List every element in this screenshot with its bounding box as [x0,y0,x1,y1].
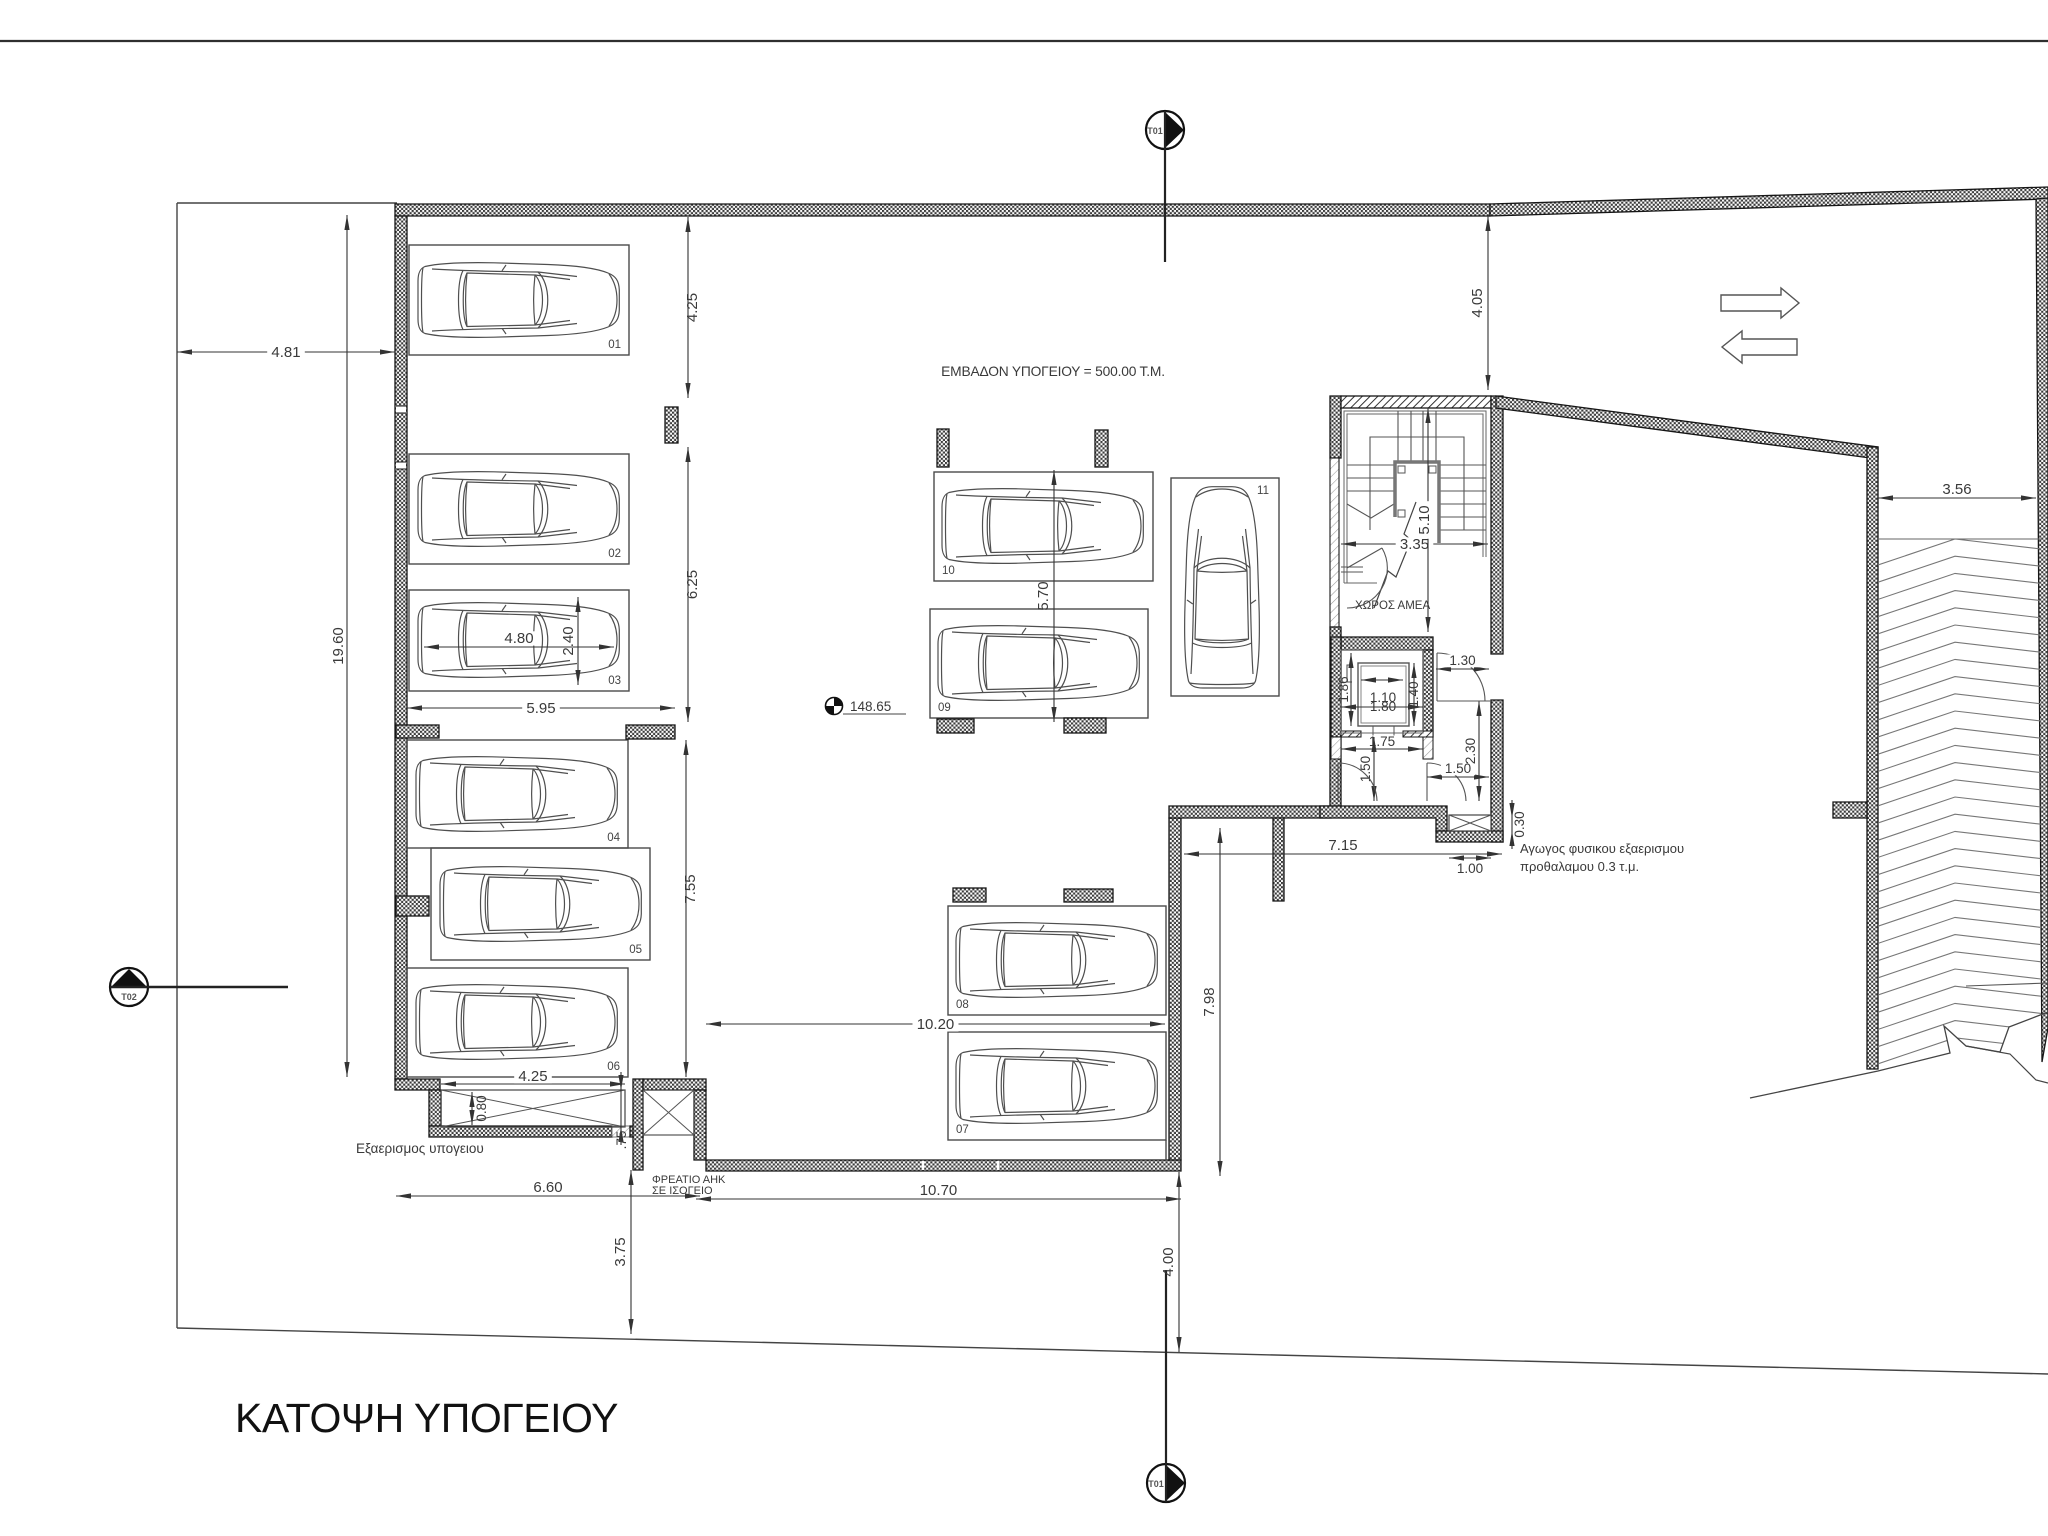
svg-text:7.98: 7.98 [1201,987,1218,1016]
svg-text:03: 03 [608,675,621,687]
svg-text:.75: .75 [614,1131,629,1150]
svg-text:01: 01 [608,339,621,351]
svg-text:1.30: 1.30 [1449,653,1475,668]
svg-text:ΚΑΤΟΨΗ ΥΠΟΓΕΙΟΥ: ΚΑΤΟΨΗ ΥΠΟΓΕΙΟΥ [235,1395,618,1441]
svg-text:4.05: 4.05 [1469,288,1486,317]
svg-text:7.55: 7.55 [682,874,699,903]
svg-text:6.25: 6.25 [684,570,701,599]
svg-text:3.56: 3.56 [1942,481,1971,498]
svg-text:4.80: 4.80 [504,630,533,647]
svg-text:19.60: 19.60 [330,627,347,665]
svg-text:09: 09 [938,702,951,714]
svg-text:Αγωγος φυσικου εξαερισμου: Αγωγος φυσικου εξαερισμου [1520,841,1684,856]
svg-text:1.86: 1.86 [1336,676,1351,702]
svg-text:4.25: 4.25 [518,1068,547,1085]
svg-text:04: 04 [607,832,620,844]
svg-text:11: 11 [1257,485,1269,497]
svg-text:T02: T02 [121,992,137,1002]
svg-text:08: 08 [956,999,969,1011]
svg-text:10: 10 [942,565,955,577]
svg-text:7.15: 7.15 [1328,837,1357,854]
svg-text:3.75: 3.75 [612,1237,629,1266]
svg-text:0.30: 0.30 [1512,811,1527,837]
svg-text:5.70: 5.70 [1035,581,1052,610]
svg-text:1.50: 1.50 [1358,756,1373,782]
svg-text:T01: T01 [1148,1479,1164,1489]
svg-text:5.10: 5.10 [1416,505,1433,534]
svg-text:07: 07 [956,1124,969,1136]
svg-text:0.80: 0.80 [474,1095,489,1121]
svg-text:ΧΩΡΟΣ ΑΜΕΑ: ΧΩΡΟΣ ΑΜΕΑ [1355,600,1430,612]
svg-text:02: 02 [608,548,621,560]
svg-text:148.65: 148.65 [850,699,891,714]
svg-text:4.00: 4.00 [1160,1247,1177,1276]
svg-text:1.00: 1.00 [1457,861,1483,876]
svg-text:5.95: 5.95 [526,700,555,717]
svg-text:6.60: 6.60 [533,1179,562,1196]
svg-text:ΣΕ ΙΣΟΓΕΙΟ: ΣΕ ΙΣΟΓΕΙΟ [652,1185,713,1197]
svg-text:06: 06 [607,1061,620,1073]
svg-text:T01: T01 [1147,126,1163,136]
svg-text:10.70: 10.70 [920,1182,958,1199]
svg-text:προθαλαμου 0.3 τ.μ.: προθαλαμου 0.3 τ.μ. [1520,859,1639,874]
svg-text:05: 05 [629,944,642,956]
svg-text:2.40: 2.40 [560,626,577,655]
svg-text:2.30: 2.30 [1463,738,1478,764]
svg-text:10.20: 10.20 [917,1016,955,1033]
svg-text:Εξαερισμος υπογειου: Εξαερισμος υπογειου [356,1141,484,1156]
svg-text:4.25: 4.25 [684,293,701,322]
svg-text:ΕΜΒΑΔΟΝ ΥΠΟΓΕΙΟΥ = 500.00 Τ.Μ.: ΕΜΒΑΔΟΝ ΥΠΟΓΕΙΟΥ = 500.00 Τ.Μ. [941,364,1165,379]
svg-text:1.40: 1.40 [1406,681,1421,707]
svg-text:1.80: 1.80 [1370,699,1396,714]
svg-text:4.81: 4.81 [271,344,300,361]
